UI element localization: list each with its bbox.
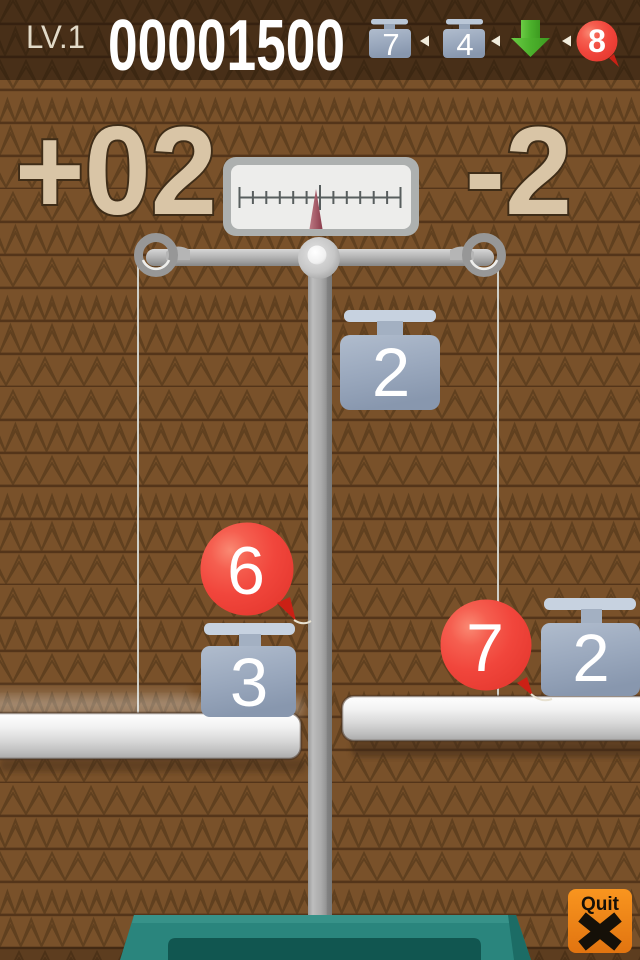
svg-text:LV.1: LV.1: [26, 19, 85, 55]
svg-text:6: 6: [227, 533, 265, 609]
svg-text:7: 7: [466, 610, 504, 686]
svg-text:2: 2: [572, 621, 609, 696]
svg-text:-2: -2: [465, 102, 572, 241]
svg-text:Quit: Quit: [581, 894, 620, 915]
svg-text:7: 7: [382, 27, 399, 62]
svg-text:3: 3: [230, 644, 268, 721]
svg-text:00001500: 00001500: [108, 6, 345, 86]
svg-text:8: 8: [588, 23, 606, 59]
svg-text:2: 2: [372, 334, 410, 411]
svg-text:4: 4: [456, 27, 473, 62]
svg-text:+02: +02: [15, 102, 217, 241]
